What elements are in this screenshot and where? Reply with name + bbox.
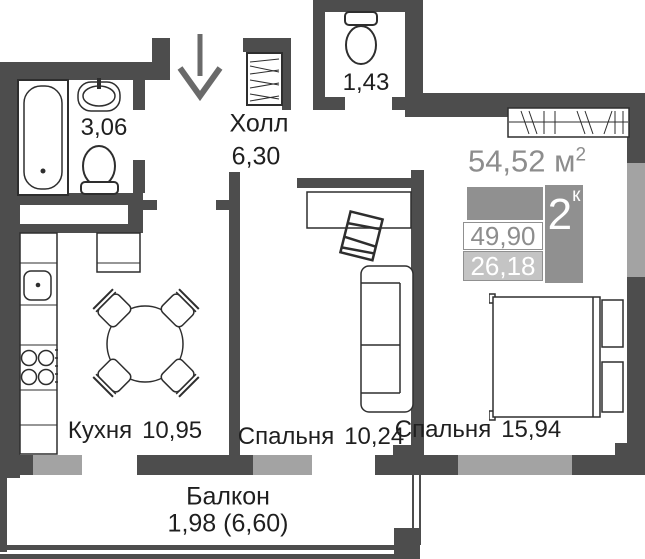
balcony-name-label: Балкон [186, 485, 270, 510]
wardrobe-icon [246, 52, 284, 107]
wall [140, 200, 157, 210]
toilet-icon [342, 11, 380, 67]
fridge-icon [96, 232, 142, 274]
wc-area-label: 1,43 [343, 71, 390, 95]
wall [216, 200, 230, 210]
balcony-slab [0, 554, 420, 559]
wall [313, 97, 345, 110]
balcony-wall [0, 475, 7, 552]
bathtub-icon [17, 79, 69, 196]
total-area-label: 54,52 м2 [468, 145, 586, 176]
bed-icon [489, 292, 603, 422]
rooms-count-badge: 2к [545, 185, 583, 283]
nightstand [601, 361, 625, 414]
wall [627, 277, 645, 455]
hall-area-label: 6,30 [232, 145, 281, 170]
badge-plan-thumbnail [467, 187, 543, 220]
window [253, 455, 312, 475]
window [33, 455, 82, 475]
wall [133, 77, 145, 110]
bedroom-small-label: Спальня10,24 [238, 425, 405, 449]
kitchen-label: Кухня10,95 [68, 419, 202, 443]
wall [297, 178, 417, 188]
wall [392, 97, 423, 110]
wall [133, 160, 145, 193]
wall [615, 443, 645, 455]
wall [0, 455, 33, 475]
sink-icon [76, 77, 122, 115]
kitchen-living-area-value: 26,18 [463, 251, 543, 281]
hall-name-label: Холл [230, 112, 289, 137]
balcony-area-label: 1,98 (6,60) [168, 512, 289, 537]
wall [229, 172, 240, 455]
wall [137, 455, 253, 475]
wall [313, 0, 325, 110]
bathroom-area-label: 3,06 [81, 116, 128, 140]
entrance-arrow-icon [168, 28, 232, 104]
wall [375, 455, 458, 475]
badge-left-column: 49,90 26,18 [463, 185, 543, 283]
floor-plan: 3,06 Холл 6,30 1,43 54,52 м2 49,90 26,18… [0, 0, 645, 559]
nightstand [601, 299, 625, 349]
wall [572, 455, 645, 475]
wardrobe-icon [507, 107, 631, 139]
apartment-info-badge: 49,90 26,18 2к [463, 185, 583, 283]
wall [394, 528, 420, 559]
bedroom-big-label: Спальня15,94 [395, 418, 562, 442]
balcony-wall [7, 545, 417, 550]
sofa-icon [360, 265, 414, 413]
toilet-icon [79, 144, 121, 196]
kitchen-counter [19, 232, 58, 456]
living-area-value: 49,90 [463, 222, 543, 250]
window [458, 455, 572, 475]
window [627, 163, 645, 277]
